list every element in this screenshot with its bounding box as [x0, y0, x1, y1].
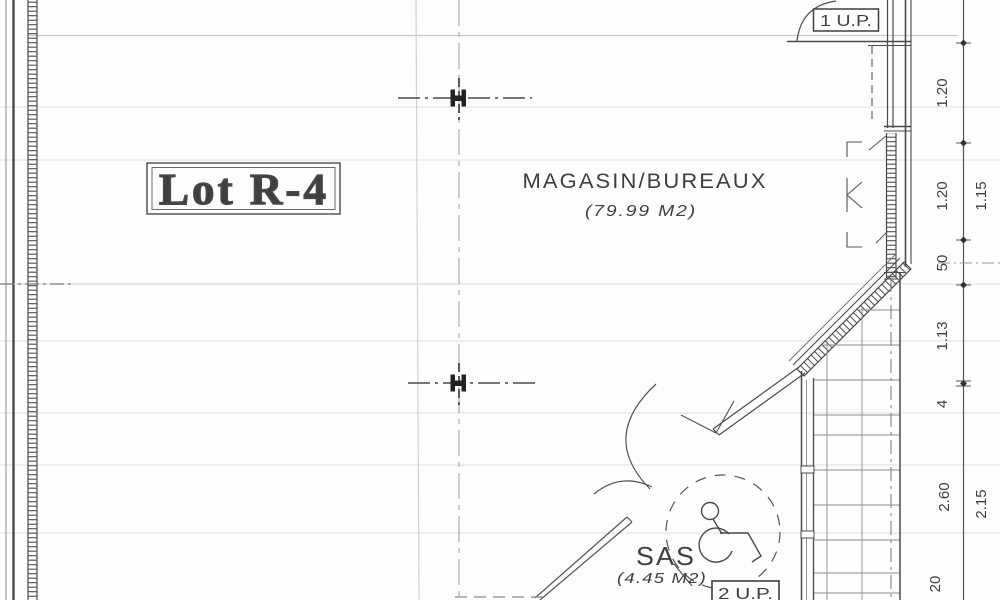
dim-2-15: 2.15	[973, 489, 990, 518]
dim-1-20-b: 1.20	[934, 181, 951, 210]
door-leaf-v-right	[716, 401, 734, 433]
dim-2-60: 2.60	[936, 482, 953, 511]
room-name-magasin: MAGASIN/BUREAUX	[523, 170, 768, 193]
door-swing-arc-upper	[626, 384, 656, 489]
dim-1-13: 1.13	[934, 321, 951, 350]
steel-column-icon-top	[398, 78, 532, 120]
up1-label: 1 U.P.	[820, 13, 872, 30]
up2-label: 2 U.P.	[718, 586, 773, 600]
sas-landing-wall	[801, 371, 814, 600]
door-swing-arc-lower	[594, 481, 652, 494]
entrance-up2: 2 U.P.	[712, 581, 779, 600]
dimension-chain: 1.20 1.20 50 1.13 4 2.60 20 1.15 2.15	[927, 0, 1000, 600]
steel-column-icon-bottom	[408, 363, 540, 405]
dim-20: 20	[927, 576, 944, 593]
room-area-sas: (4.45 M2)	[617, 570, 707, 587]
door-leaf-lower-a	[535, 517, 627, 598]
window-opening-symbol	[847, 142, 862, 247]
floor-plan-sheet: Lot R-4 MAGASIN/BUREAUX (79.99 M2) 1 U.P…	[0, 0, 1000, 600]
door-leaf-v-left	[681, 415, 716, 433]
dim-1-15: 1.15	[973, 181, 990, 210]
paper-fold-line	[416, 0, 419, 600]
dim-50: 50	[934, 255, 951, 272]
floor-plan-drawing: Lot R-4 MAGASIN/BUREAUX (79.99 M2) 1 U.P…	[0, 0, 1000, 600]
lot-label: Lot R-4	[159, 165, 329, 214]
room-area-magasin: (79.99 M2)	[585, 203, 697, 220]
dim-4: 4	[934, 400, 951, 408]
dim-1-20-a: 1.20	[934, 78, 951, 107]
window-glazing	[869, 133, 896, 278]
lot-label-box: Lot R-4	[147, 163, 340, 214]
left-wall	[6, 0, 37, 600]
room-name-sas: SAS	[636, 541, 696, 571]
